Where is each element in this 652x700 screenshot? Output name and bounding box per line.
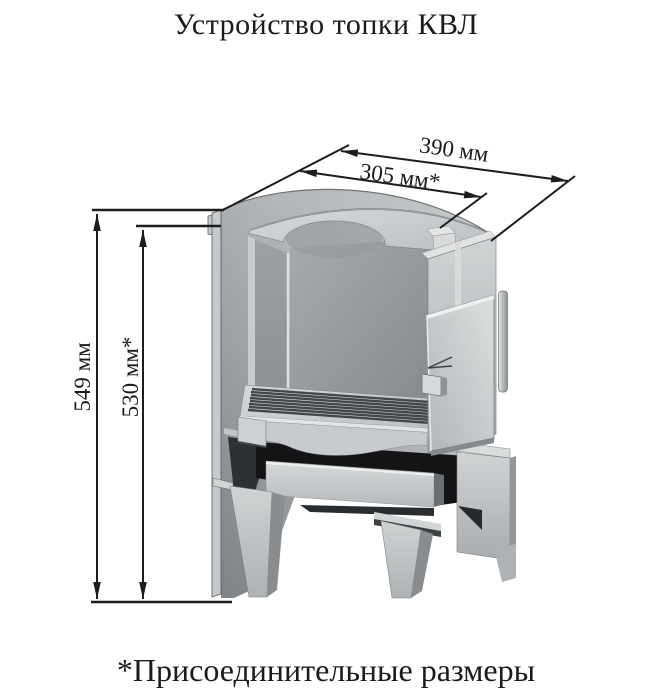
figure-footnote: *Присоединительные размеры: [0, 652, 652, 689]
dim-label-depth-connection: 305 мм*: [358, 159, 442, 195]
firebox-illustration: [208, 189, 516, 598]
figure-canvas: Устройство топки КВЛ: [0, 0, 652, 700]
shell-left-edge: [212, 210, 221, 597]
firebox-door: [422, 295, 494, 456]
dim-label-height-outer: 549 мм: [70, 342, 95, 412]
firebox-technical-drawing: 390 мм 305 мм* 549 мм 530 мм*: [0, 0, 652, 700]
extension-line-right-390: [491, 176, 575, 241]
dim-label-height-connection: 530 мм*: [118, 337, 143, 418]
front-right-leg: [374, 512, 441, 598]
hinge-rod: [499, 291, 508, 392]
